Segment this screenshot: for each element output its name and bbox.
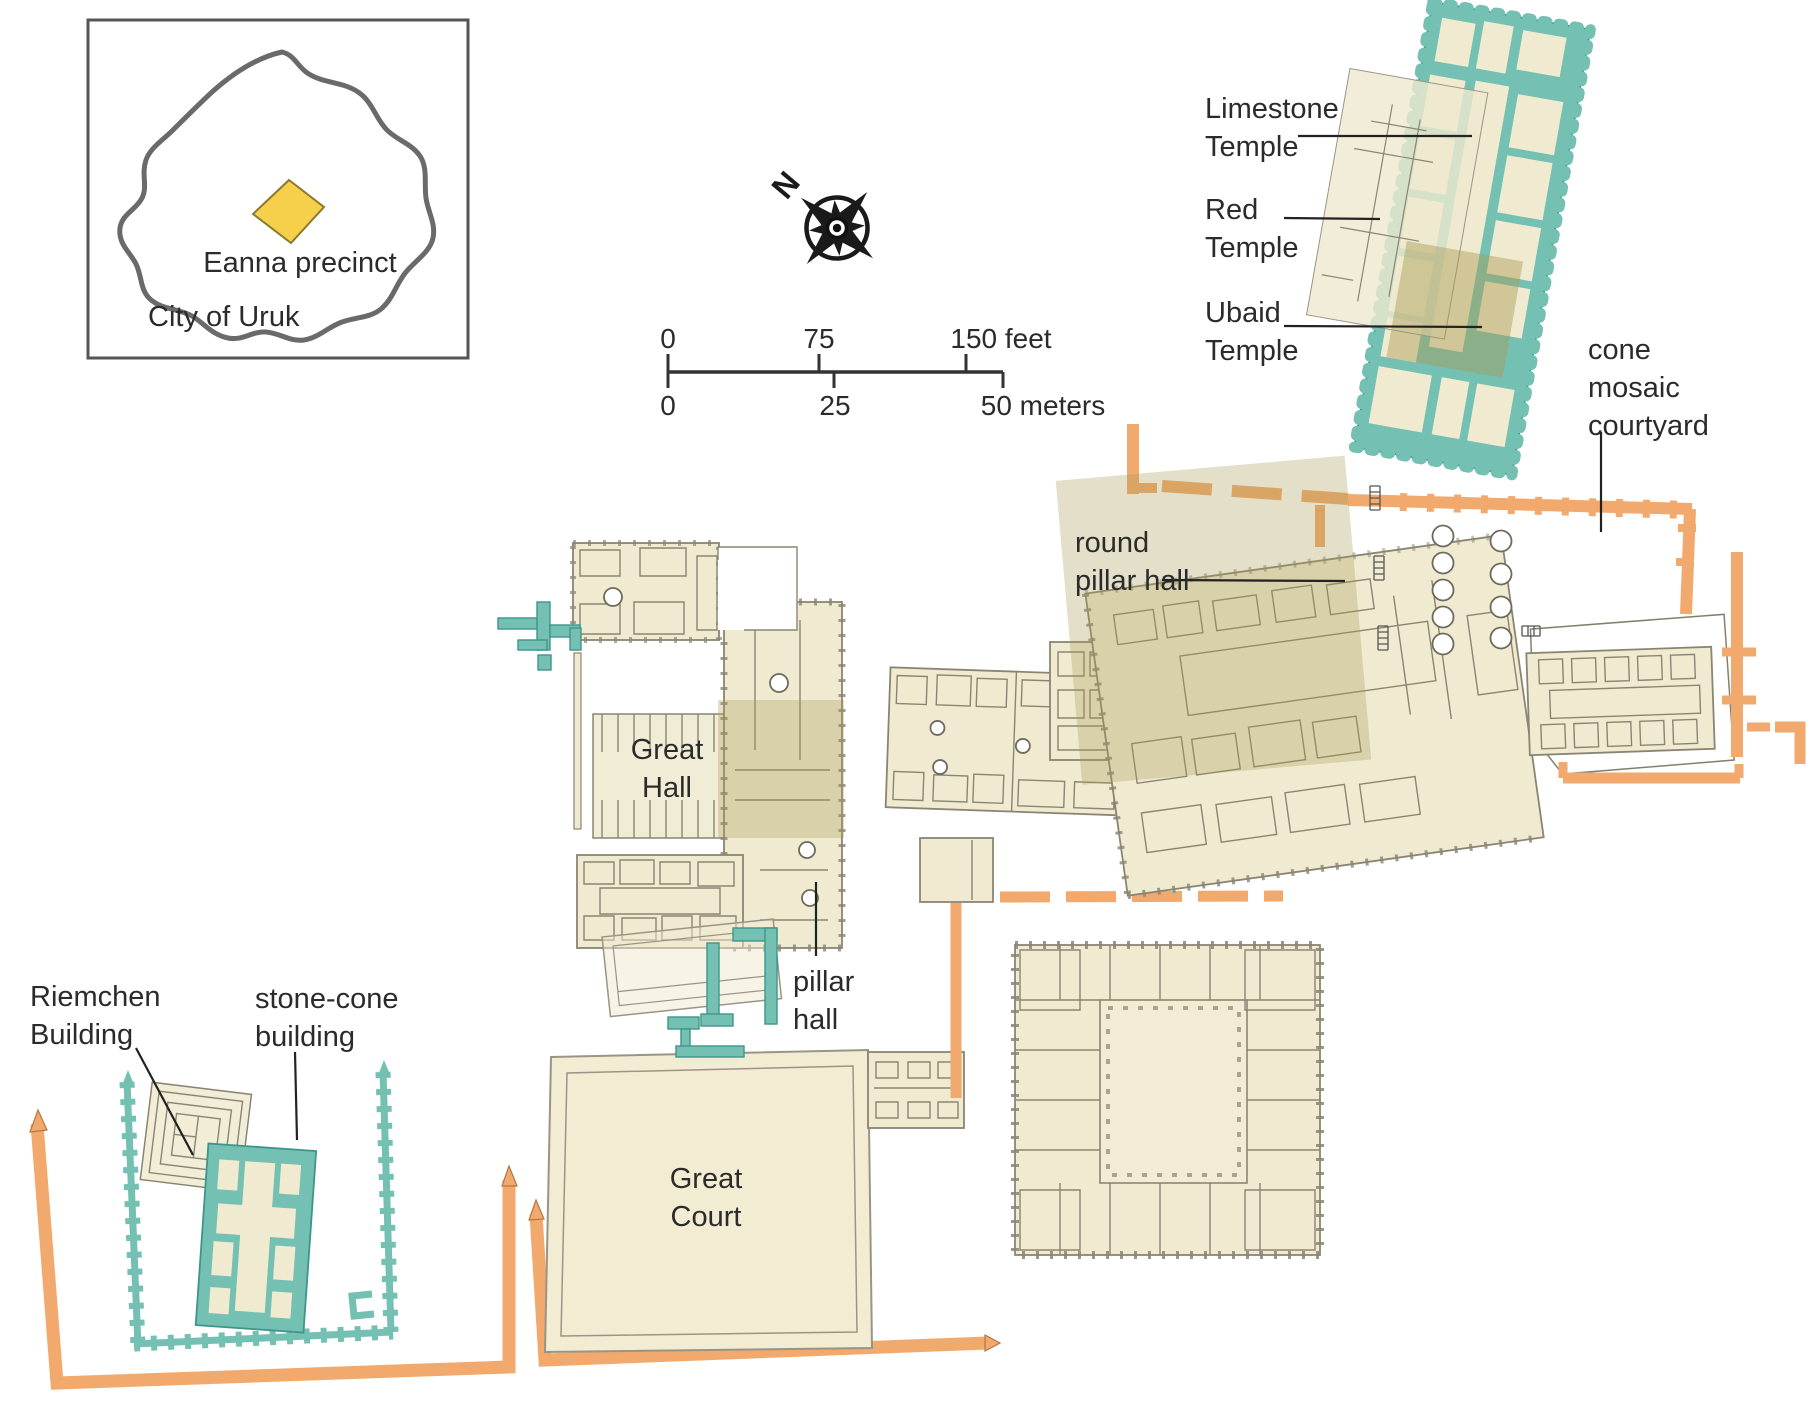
label-stone-cone-line2: building [255, 1018, 399, 1056]
thin-wall [574, 653, 581, 829]
label-stone-cone-building: stone-cone building [255, 980, 399, 1056]
label-pillar-hall: pillar hall [793, 963, 854, 1039]
teal-wall-cross-upper [498, 602, 581, 670]
label-stone-cone-line1: stone-cone [255, 980, 399, 1018]
label-great-court: Great Court [670, 1160, 743, 1236]
label-cone-line2: mosaic [1588, 369, 1709, 407]
label-great-hall-line2: Hall [631, 769, 704, 807]
limestone-temple-plan [1285, 0, 1590, 475]
label-ubaid-temple: Ubaid Temple [1205, 294, 1299, 370]
label-limestone-temple-line2: Temple [1205, 128, 1339, 166]
label-cone-mosaic-courtyard: cone mosaic courtyard [1588, 331, 1709, 445]
eanna-precinct-site-plan: N 0 75 150 feet 0 25 50 meters [0, 0, 1808, 1408]
leader-ubaid-temple [1284, 326, 1482, 327]
label-riemchen-line1: Riemchen [30, 978, 161, 1016]
label-red-temple: Red Temple [1205, 191, 1299, 267]
inset-city-label-text: City of Uruk [148, 301, 299, 333]
scale-feet-end: 150 feet [950, 323, 1051, 354]
label-cone-line1: cone [1588, 331, 1709, 369]
label-limestone-temple: Limestone Temple [1205, 90, 1339, 166]
scale-bar: 0 75 150 feet 0 25 50 meters [660, 323, 1105, 421]
small-meander-building [868, 1052, 964, 1128]
compass-north-label: N [764, 165, 806, 206]
inset-city-label: City of Uruk [148, 298, 299, 336]
label-cone-line3: courtyard [1588, 407, 1709, 445]
right-meander-temple [1525, 614, 1734, 775]
label-great-hall: Great Hall [631, 731, 704, 807]
pillar-hall-overlay [718, 700, 844, 838]
label-round-pillar-hall-line1: round [1075, 524, 1189, 562]
enclosure-corner-detail [352, 1294, 374, 1316]
label-great-hall-line1: Great [631, 731, 704, 769]
label-pillar-hall-line1: pillar [793, 963, 854, 1001]
inset-precinct-label: Eanna precinct [203, 244, 396, 282]
label-pillar-hall-line2: hall [793, 1001, 854, 1039]
label-red-temple-line1: Red [1205, 191, 1299, 229]
north-court-enclosure [718, 547, 797, 630]
label-limestone-temple-line1: Limestone [1205, 90, 1339, 128]
label-round-pillar-hall-line2: pillar hall [1075, 562, 1189, 600]
scale-meters-zero: 0 [660, 390, 676, 421]
ubaid-temple-plan [1386, 241, 1523, 378]
leader-stone-cone-building [295, 1052, 297, 1140]
site-plan-drawing: N 0 75 150 feet 0 25 50 meters [0, 0, 1808, 1408]
label-great-court-line2: Court [670, 1198, 743, 1236]
compass-rose-icon: N [742, 137, 904, 294]
scale-feet-mid: 75 [803, 323, 834, 354]
small-box-room [920, 838, 993, 902]
label-riemchen-building: Riemchen Building [30, 978, 161, 1054]
label-ubaid-temple-line1: Ubaid [1205, 294, 1299, 332]
label-round-pillar-hall: round pillar hall [1075, 524, 1189, 600]
round-pillar-hall-overlay [1056, 456, 1371, 785]
label-riemchen-line2: Building [30, 1016, 161, 1054]
inset-precinct-label-text: Eanna precinct [203, 247, 396, 279]
stone-cone-building-plan [196, 1144, 316, 1333]
square-temple-building [1015, 945, 1320, 1255]
scale-meters-end: 50 meters [981, 390, 1106, 421]
scale-feet-zero: 0 [660, 323, 676, 354]
northwest-complex-building [573, 543, 719, 640]
label-ubaid-temple-line2: Temple [1205, 332, 1299, 370]
label-great-court-line1: Great [670, 1160, 743, 1198]
scale-meters-mid: 25 [819, 390, 850, 421]
label-red-temple-line2: Temple [1205, 229, 1299, 267]
